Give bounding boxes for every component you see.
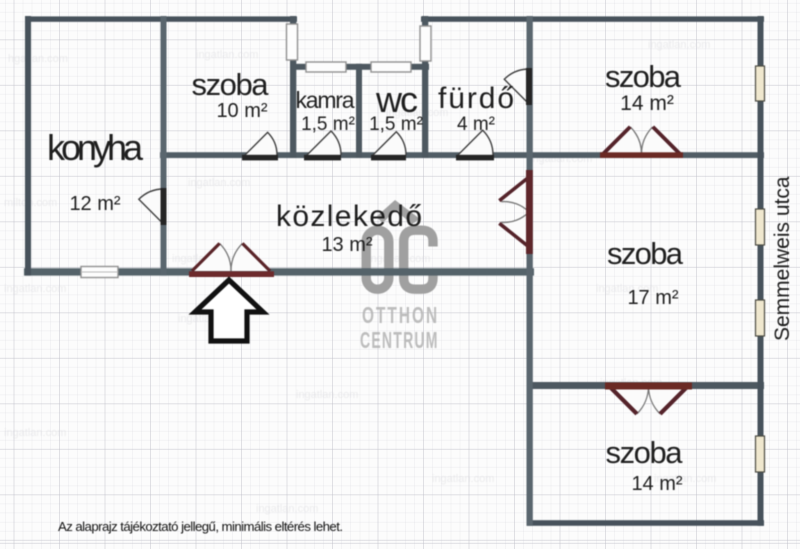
svg-text:Az alaprajz tájékoztató jelleg: Az alaprajz tájékoztató jellegű, minimál…	[58, 519, 343, 534]
svg-text:ingatlan.com: ingatlan.com	[188, 177, 250, 189]
svg-text:Semmelweis utca: Semmelweis utca	[771, 176, 794, 341]
svg-text:ingatlan.com: ingatlan.com	[196, 49, 258, 61]
svg-text:1,5 m²: 1,5 m²	[369, 114, 423, 135]
svg-text:OTTHON: OTTHON	[362, 303, 439, 329]
svg-text:szoba: szoba	[192, 67, 270, 102]
svg-text:13 m²: 13 m²	[321, 234, 372, 256]
svg-text:10 m²: 10 m²	[216, 100, 267, 122]
svg-text:ingatlan.com: ingatlan.com	[4, 427, 66, 439]
svg-text:ingatlan.com: ingatlan.com	[296, 389, 358, 401]
svg-text:ingatlan.com: ingatlan.com	[648, 39, 710, 51]
svg-text:szoba: szoba	[606, 435, 684, 470]
svg-text:12 m²: 12 m²	[69, 193, 120, 215]
svg-text:ingatlan.com: ingatlan.com	[256, 503, 318, 515]
svg-text:közlekedő: közlekedő	[276, 200, 422, 233]
svg-text:ingatlan.com: ingatlan.com	[4, 283, 66, 295]
svg-text:14 m²: 14 m²	[631, 473, 682, 495]
svg-text:1,5 m²: 1,5 m²	[301, 114, 355, 135]
svg-text:CENTRUM: CENTRUM	[360, 329, 439, 354]
svg-text:konyha: konyha	[47, 127, 144, 168]
svg-text:ingatlan.com: ingatlan.com	[432, 473, 494, 485]
svg-text:kamra: kamra	[296, 87, 355, 113]
svg-text:4 m²: 4 m²	[457, 114, 495, 135]
svg-text:fürdő: fürdő	[438, 82, 514, 115]
svg-text:hgatlan.com: hgatlan.com	[8, 53, 68, 65]
svg-text:17 m²: 17 m²	[627, 287, 678, 309]
svg-text:szoba: szoba	[605, 59, 682, 94]
svg-text:14 m²: 14 m²	[620, 92, 674, 115]
svg-text:szoba: szoba	[607, 236, 684, 271]
